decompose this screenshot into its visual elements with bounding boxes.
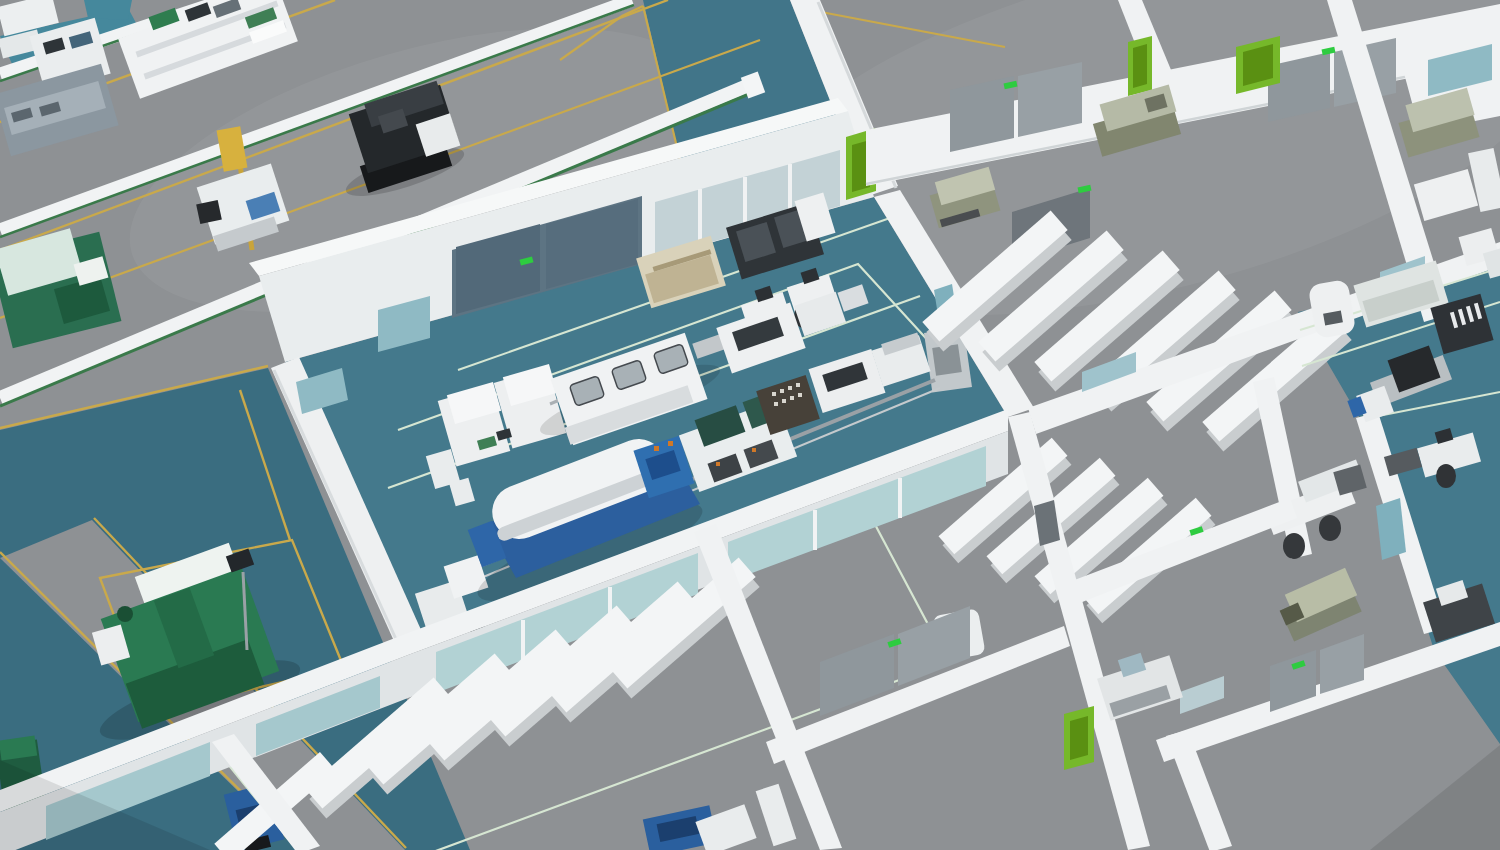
smt-dark-machine-dot-3 (788, 386, 792, 390)
smt-pnp-feeder-dot-2 (752, 448, 756, 452)
smt-pnp-feeder-dot-1 (716, 462, 720, 466)
smt-dark-machine-dot-2 (780, 389, 784, 393)
smt-dark-machine-dot-4 (796, 383, 800, 387)
smt-dark-machine-dot-6 (782, 399, 786, 403)
chair-office-2 (1319, 515, 1341, 541)
machine-blue-dot-1 (654, 446, 659, 451)
smt-dark-machine-dot-1 (772, 392, 776, 396)
workbench-teal-2 (84, 0, 132, 20)
door-green-bottom-panel (1070, 716, 1088, 760)
press-green-nub (117, 606, 133, 622)
smt-dark-machine-dot-8 (798, 393, 802, 397)
utility-tower-gray-front (932, 344, 962, 375)
door-green-top-1-panel (1133, 44, 1147, 88)
chair-office-1 (1283, 533, 1305, 559)
smt-dark-machine-dot-7 (790, 396, 794, 400)
smt-dark-machine-dot-5 (774, 402, 778, 406)
machine-blue-dot-2 (668, 441, 673, 446)
scene (0, 0, 1500, 850)
factory-3d-render-view (0, 0, 1500, 850)
chair-fr (1436, 464, 1456, 488)
